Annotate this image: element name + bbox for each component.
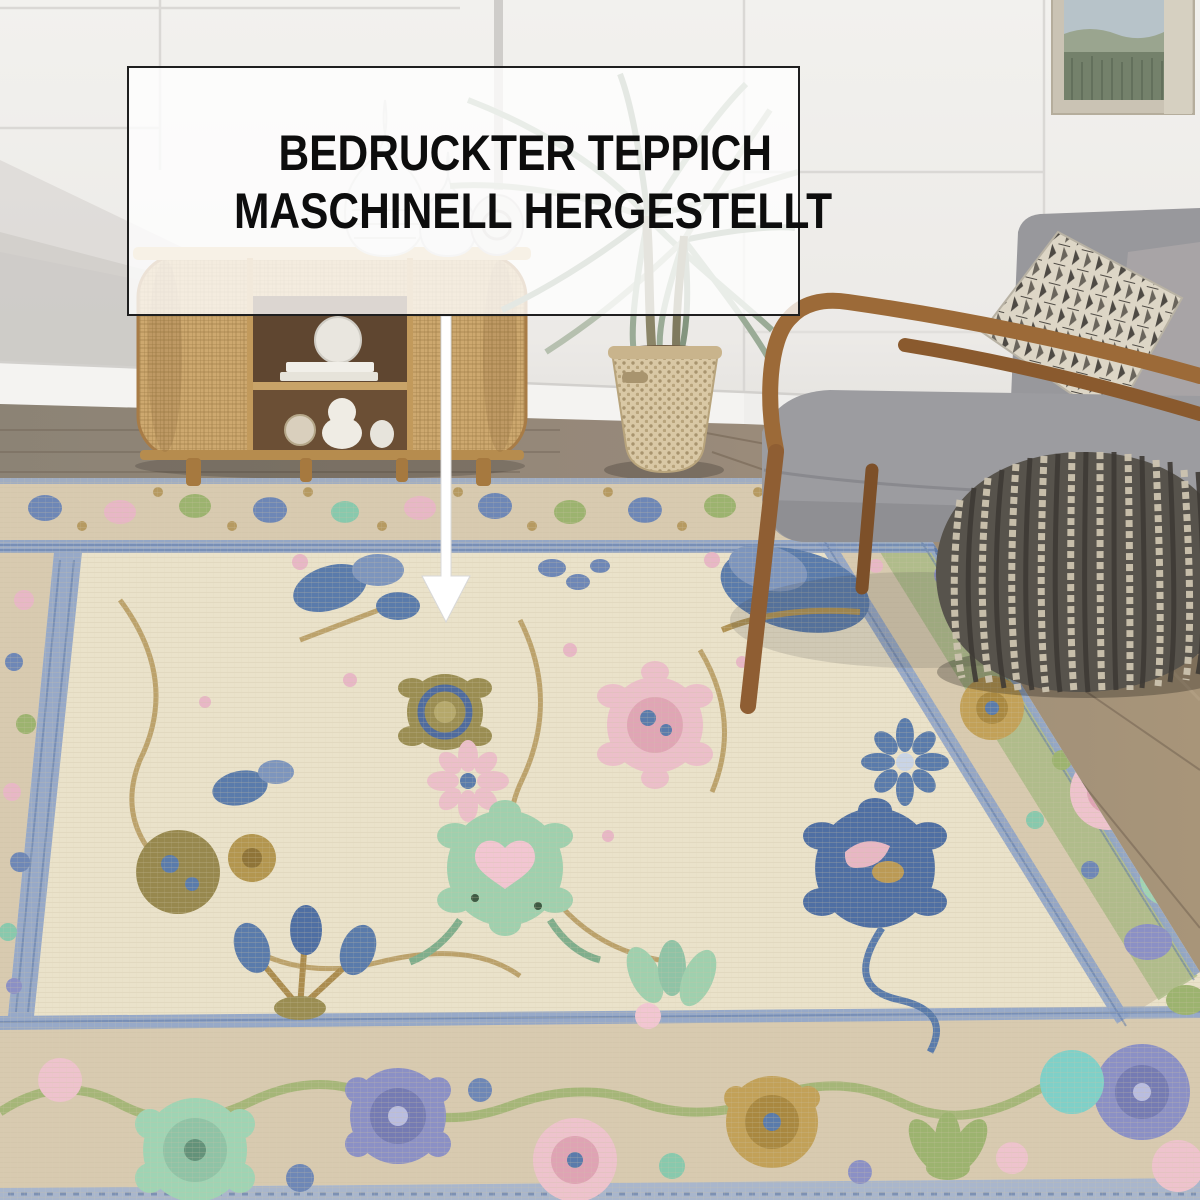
books-stack [280, 372, 378, 381]
callout-line1: BEDRUCKTER TEPPICH [234, 124, 772, 182]
knitted-pouf [936, 452, 1200, 698]
decor-sphere [315, 317, 361, 363]
product-photo-scene: BEDRUCKTER TEPPICH MASCHINELL HERGESTELL… [0, 0, 1200, 1200]
wall-art-frame [1052, 0, 1194, 114]
callout-box: BEDRUCKTER TEPPICH MASCHINELL HERGESTELL… [127, 66, 800, 316]
callout-line2: MASCHINELL HERGESTELLT [234, 182, 772, 240]
ceramic-pot [370, 420, 394, 448]
wicker-ball [285, 415, 315, 445]
books-stack [286, 362, 374, 372]
basket-handle-hole [622, 372, 648, 383]
